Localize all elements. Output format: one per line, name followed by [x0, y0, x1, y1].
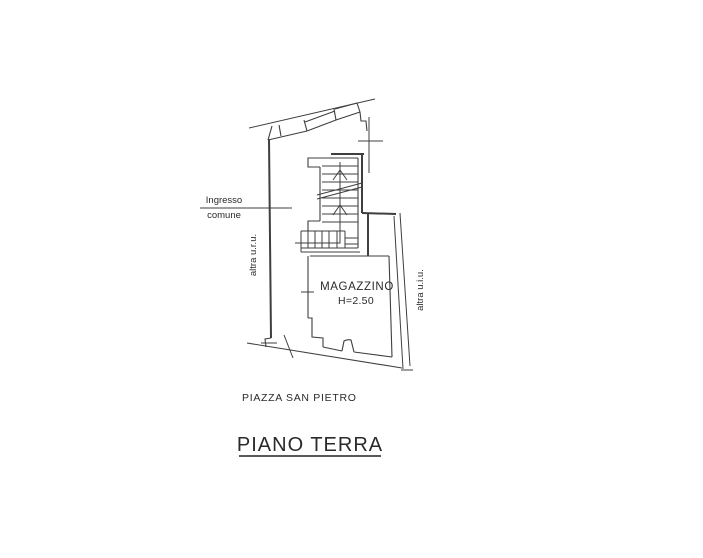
right-wing-walls — [362, 213, 396, 256]
street-label: PIAZZA SAN PIETRO — [242, 392, 357, 404]
right-unit-label: altra u.i.u. — [415, 269, 426, 311]
floor-plan-page: Ingresso comune altra u.r.u. altra u.i.u… — [0, 0, 703, 558]
left-unit-label: altra u.r.u. — [248, 234, 259, 276]
room-height-label: H=2.50 — [338, 295, 374, 307]
room-name-label: MAGAZZINO — [320, 281, 394, 293]
floor-plan-drawing: Ingresso comune altra u.r.u. altra u.i.u… — [0, 0, 703, 558]
page-title: PIANO TERRA — [237, 434, 383, 456]
wall-bump — [342, 340, 354, 352]
entrance-callout: Ingresso comune — [200, 195, 292, 221]
entrance-label-line2: comune — [207, 210, 241, 221]
entrance-label-line1: Ingresso — [206, 195, 242, 206]
top-strip — [249, 99, 375, 140]
building-outline — [247, 139, 402, 368]
stair-lower-flight — [301, 231, 345, 252]
title-block: PIANO TERRA — [237, 434, 383, 456]
property-line-right — [394, 213, 413, 370]
boundary-tick — [284, 335, 293, 358]
staircase — [295, 154, 364, 252]
